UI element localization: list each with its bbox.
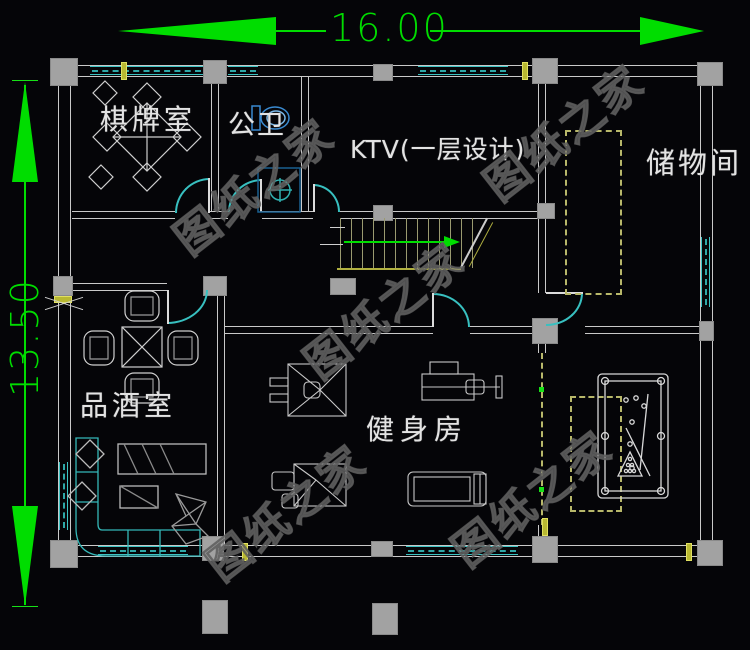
window-top-right: [418, 66, 508, 75]
floor-plan-canvas: 16.00 13.50: [0, 0, 750, 650]
door-arc-ktv: [313, 184, 340, 212]
column: [53, 276, 73, 296]
window-top-bath: [228, 66, 258, 75]
room-label-storage: 储物间: [646, 140, 742, 182]
pool-table-icon: [596, 372, 670, 500]
porch-column: [202, 600, 228, 634]
dimension-width-line-right: [430, 30, 642, 32]
column: [532, 58, 558, 84]
column: [697, 62, 723, 86]
room-label-gym: 健身房: [366, 408, 468, 448]
door-leaf-ktv: [313, 184, 315, 212]
divider-dot-1: [539, 387, 544, 392]
dimension-arrow-right-icon: [640, 17, 704, 45]
mahjong-table-icon: [85, 75, 215, 205]
column: [537, 203, 555, 219]
wall-right: [700, 65, 713, 557]
room-label-chess: 棋牌室: [100, 98, 196, 138]
room-label-wine: 品酒室: [80, 384, 176, 424]
column: [532, 536, 558, 563]
wall-mid-lower-c: [585, 326, 700, 334]
window-right-wall: [701, 237, 710, 307]
exercise-machine-2: [422, 362, 502, 400]
wall-mid-lower-b: [470, 326, 532, 334]
column: [373, 64, 393, 81]
dimension-tick-bottom: [12, 606, 38, 607]
window-left-wall: [59, 462, 68, 530]
stair-tick-1: [330, 227, 345, 228]
porch-column: [372, 603, 398, 635]
dimension-width-label: 16.00: [330, 6, 449, 50]
frame-post-top-2: [522, 62, 528, 80]
stair-tick-2: [320, 244, 343, 245]
dimension-tick-top: [12, 80, 38, 81]
window-top-left: [90, 66, 203, 75]
column: [697, 540, 723, 566]
dimension-arrow-left-icon: [118, 17, 276, 45]
dimension-arrow-down-icon: [12, 506, 38, 606]
column: [371, 541, 393, 557]
dimension-arrow-up-icon: [12, 82, 38, 182]
wall-wine-right: [217, 290, 225, 545]
column: [699, 321, 714, 341]
column: [50, 58, 78, 86]
door-arc-storage: [546, 293, 583, 326]
frame-post-bottom-2: [686, 543, 692, 561]
